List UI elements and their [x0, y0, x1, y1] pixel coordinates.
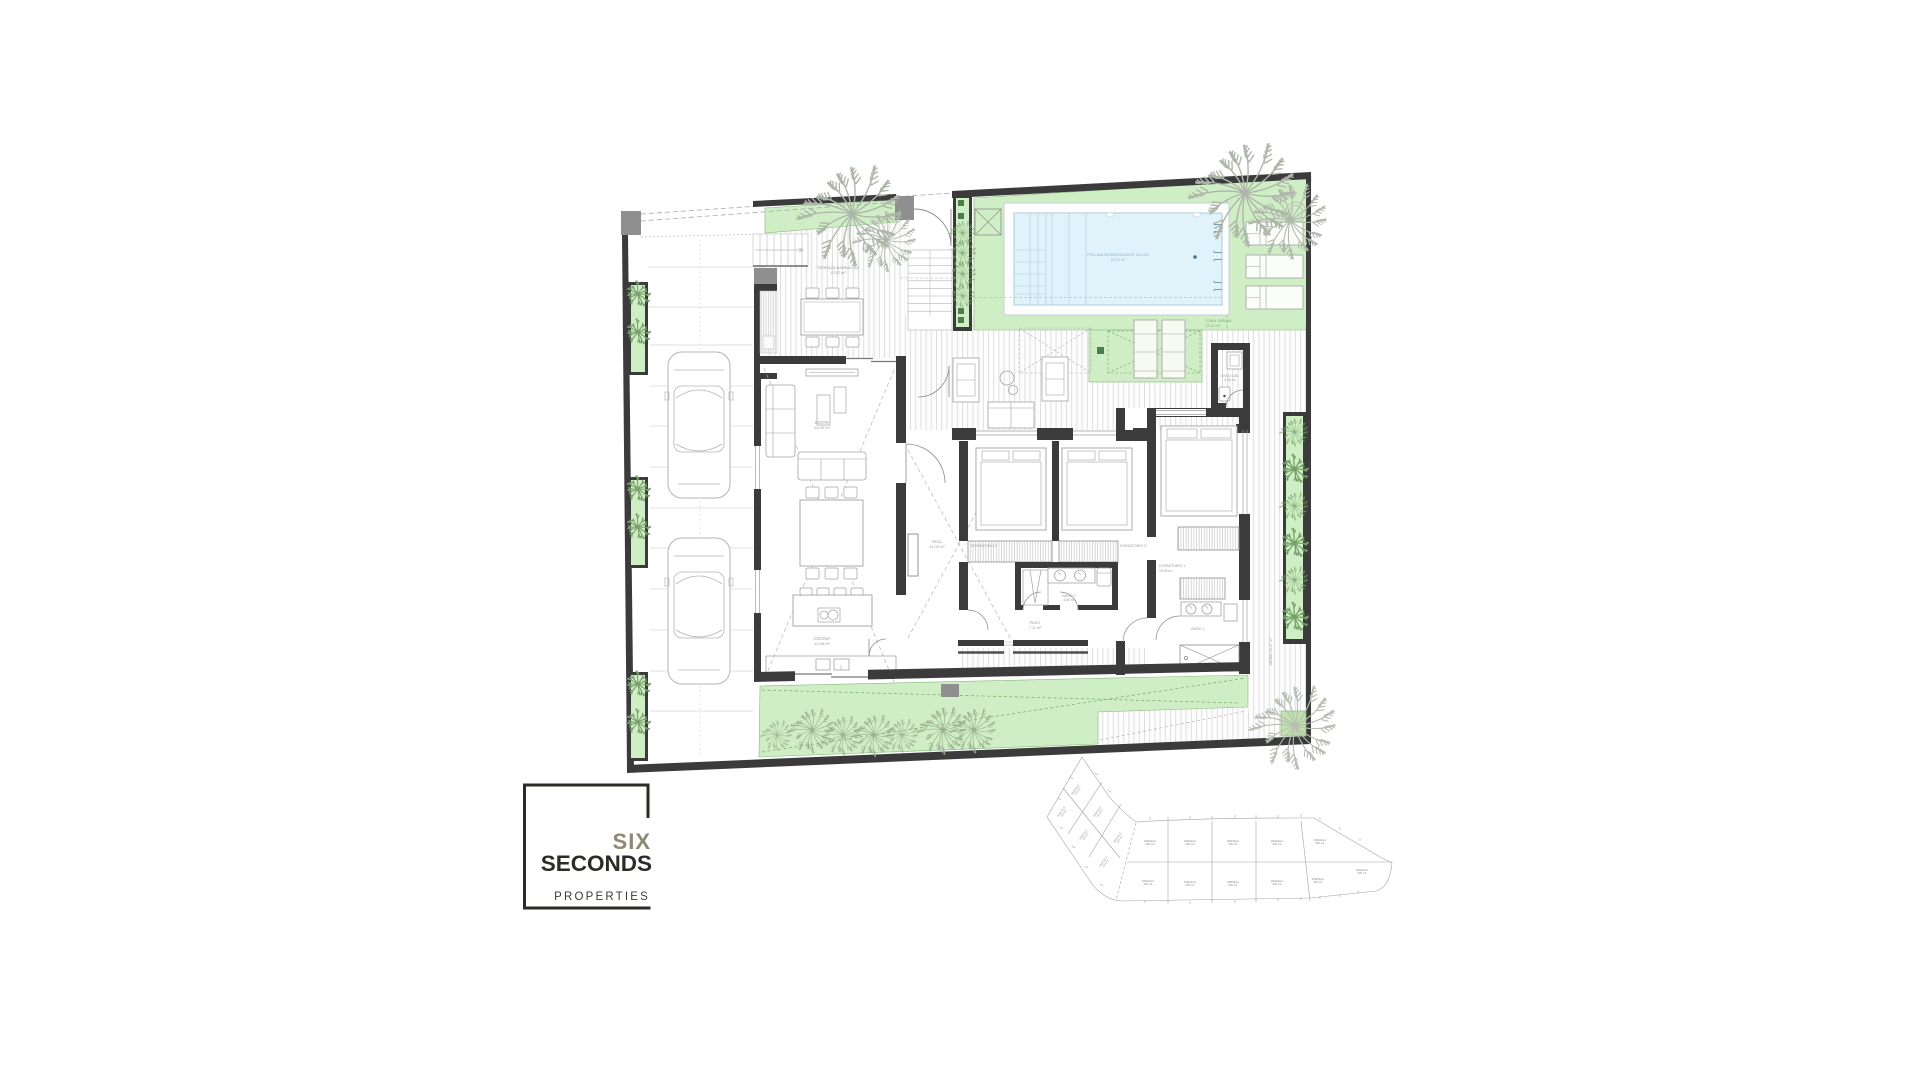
svg-text:JARDIN 25.07 m²: JARDIN 25.07 m² [1269, 637, 1273, 666]
svg-text:520 m2: 520 m2 [1358, 871, 1367, 875]
svg-text:520 m2: 520 m2 [1229, 842, 1238, 846]
svg-text:520 m2: 520 m2 [1186, 883, 1195, 887]
svg-text:20.00 m²: 20.00 m² [814, 425, 830, 430]
svg-text:DORMITORIO 3: DORMITORIO 3 [1120, 544, 1146, 548]
svg-text:SECONDS: SECONDS [541, 851, 652, 876]
svg-text:520 m2: 520 m2 [1273, 882, 1282, 886]
svg-text:15.00 m²: 15.00 m² [1159, 569, 1173, 573]
svg-text:3.06 m²: 3.06 m² [1224, 378, 1236, 382]
svg-text:14.06 m²: 14.06 m² [814, 641, 830, 646]
svg-text:DORMITORIO 2: DORMITORIO 2 [971, 544, 997, 548]
svg-text:13.02 m²: 13.02 m² [831, 271, 847, 275]
svg-text:23.71 m²: 23.71 m² [1111, 258, 1127, 262]
svg-text:11.00 m²: 11.00 m² [929, 544, 945, 549]
svg-text:520 m2: 520 m2 [1314, 880, 1323, 884]
svg-text:PISCINA DESBORDANTE H=1.50: PISCINA DESBORDANTE H=1.50 [1087, 252, 1149, 257]
svg-text:520 m2: 520 m2 [1316, 841, 1325, 845]
svg-text:DORMITORIO 1: DORMITORIO 1 [1159, 564, 1185, 568]
svg-text:BAÑO 1: BAÑO 1 [1191, 626, 1204, 631]
svg-text:7.11 m²: 7.11 m² [1029, 626, 1042, 630]
svg-text:520 m2: 520 m2 [1273, 842, 1282, 846]
svg-text:PROPERTIES: PROPERTIES [554, 891, 650, 903]
svg-text:520 m2: 520 m2 [1186, 842, 1195, 846]
svg-text:520 m2: 520 m2 [1229, 883, 1238, 887]
svg-text:PASO: PASO [1030, 620, 1041, 625]
svg-text:ZONA JARDIN: ZONA JARDIN [1205, 318, 1232, 323]
svg-text:520 m2: 520 m2 [1144, 882, 1153, 886]
svg-text:520 m2: 520 m2 [1146, 842, 1155, 846]
svg-text:72.00 m²: 72.00 m² [1205, 324, 1221, 328]
